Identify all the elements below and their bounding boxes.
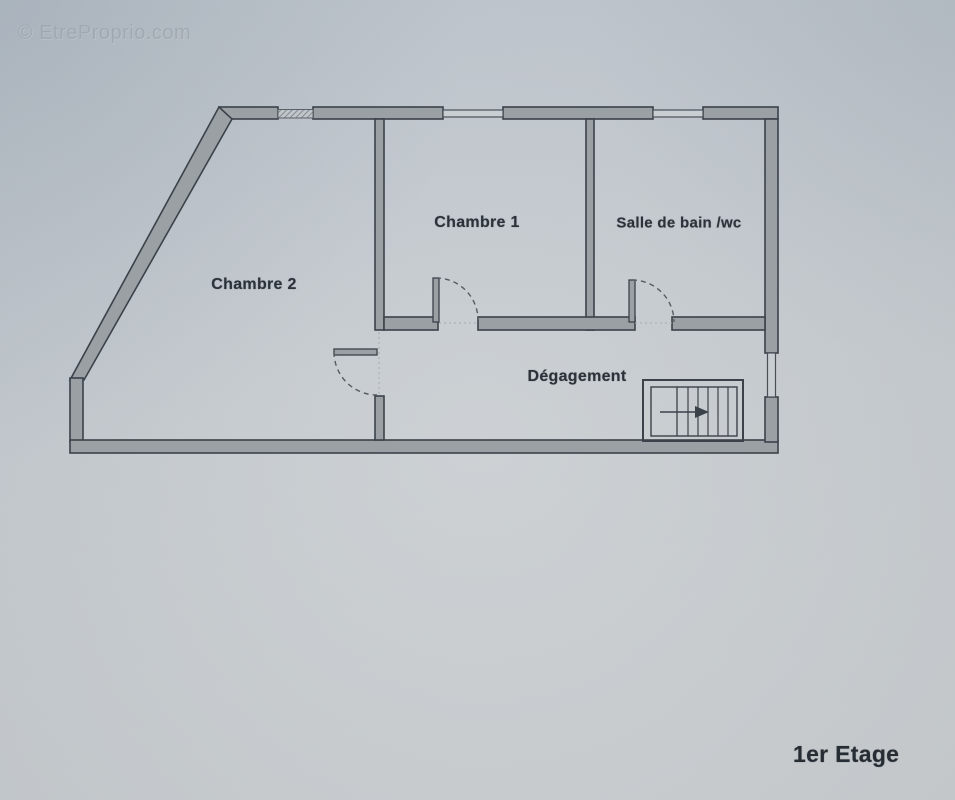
wall-top-segment bbox=[703, 107, 778, 119]
door-swing-arc bbox=[334, 352, 377, 395]
door-chambre1 bbox=[433, 278, 478, 323]
staircase bbox=[643, 380, 743, 441]
wall-chambre1-sdb bbox=[586, 119, 594, 330]
stairs-arrow-icon bbox=[695, 406, 709, 418]
door-swing-arc bbox=[632, 280, 674, 322]
wall-diagonal-left bbox=[70, 107, 232, 380]
door-leaf bbox=[334, 349, 377, 355]
wall-chambre2-corridor bbox=[375, 396, 384, 440]
wall-top-segment bbox=[313, 107, 443, 119]
wall-corridor-1 bbox=[384, 317, 438, 330]
floorplan-drawing bbox=[0, 0, 955, 800]
room-label-salle-de-bain: Salle de bain /wc bbox=[616, 215, 741, 232]
window-chambre1-top bbox=[443, 110, 503, 117]
wall-corridor-2 bbox=[478, 317, 635, 330]
room-label-degagement: Dégagement bbox=[527, 368, 626, 386]
room-label-chambre1: Chambre 1 bbox=[434, 214, 519, 232]
wall-left-stub bbox=[70, 378, 83, 442]
window-salle-de-bain-top bbox=[653, 110, 703, 117]
door-leaf bbox=[433, 278, 439, 322]
wall-corridor-3 bbox=[672, 317, 765, 330]
wall-chambre2-chambre1 bbox=[375, 119, 384, 330]
window-chambre2-top-hatched bbox=[278, 110, 313, 119]
wall-right-upper bbox=[765, 119, 778, 353]
floorplan-photo: © EtreProprio.com Chambre 1 Salle de bai… bbox=[0, 0, 955, 800]
wall-right-lower bbox=[765, 397, 778, 442]
watermark-text: © EtreProprio.com bbox=[18, 22, 191, 45]
floor-title: 1er Etage bbox=[793, 741, 899, 768]
exterior-walls bbox=[70, 107, 778, 453]
room-label-chambre2: Chambre 2 bbox=[211, 276, 296, 294]
wall-top-segment bbox=[503, 107, 653, 119]
door-leaf bbox=[629, 280, 635, 322]
door-chambre2 bbox=[334, 332, 379, 395]
door-swing-arc bbox=[436, 278, 478, 320]
window-degagement-right bbox=[768, 353, 776, 397]
